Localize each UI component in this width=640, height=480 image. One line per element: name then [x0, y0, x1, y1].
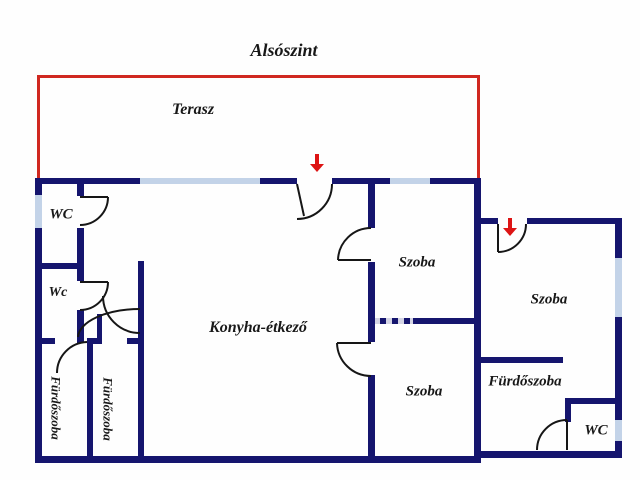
room-label-szoba-right: Szoba	[531, 293, 568, 308]
door-szoba-top-arc	[338, 228, 371, 260]
door-wc-right-arc	[537, 420, 567, 450]
plan-title: Alsószint	[250, 41, 317, 59]
arrow-head	[503, 228, 517, 236]
door-szoba-bottom-arc	[337, 343, 371, 376]
entrance-arrow-right	[503, 218, 517, 236]
room-label-konyha-etkezo: Konyha-étkező	[209, 320, 307, 336]
door-main-entrance-arc	[297, 184, 332, 219]
room-label-wc-upper-left: WC	[49, 208, 72, 223]
room-label-furdoszoba-left-inner: Fürdőszoba	[102, 377, 115, 441]
doors-and-arrows-overlay	[0, 0, 640, 480]
room-label-wc-right: WC	[584, 424, 607, 439]
room-label-szoba-middle-bottom: Szoba	[406, 385, 443, 400]
door-wc-upper-left-arc	[80, 197, 108, 225]
room-label-furdoszoba-right: Fürdőszoba	[488, 375, 561, 390]
floor-plan: AlsószintTeraszWCWcFürdőszobaFürdőszobaK…	[0, 0, 640, 480]
entrance-arrow-main	[310, 154, 324, 172]
room-label-szoba-middle-top: Szoba	[399, 256, 436, 271]
room-label-furdoszoba-left-outer: Fürdőszoba	[50, 376, 63, 440]
room-label-wc-lower-left: Wc	[49, 286, 68, 300]
room-label-terasz: Terasz	[172, 102, 214, 118]
door-furdoszoba-left-outer-arc	[57, 342, 87, 373]
arrow-head	[310, 164, 324, 172]
door-furdoszoba-left-inner-arc	[103, 296, 140, 333]
